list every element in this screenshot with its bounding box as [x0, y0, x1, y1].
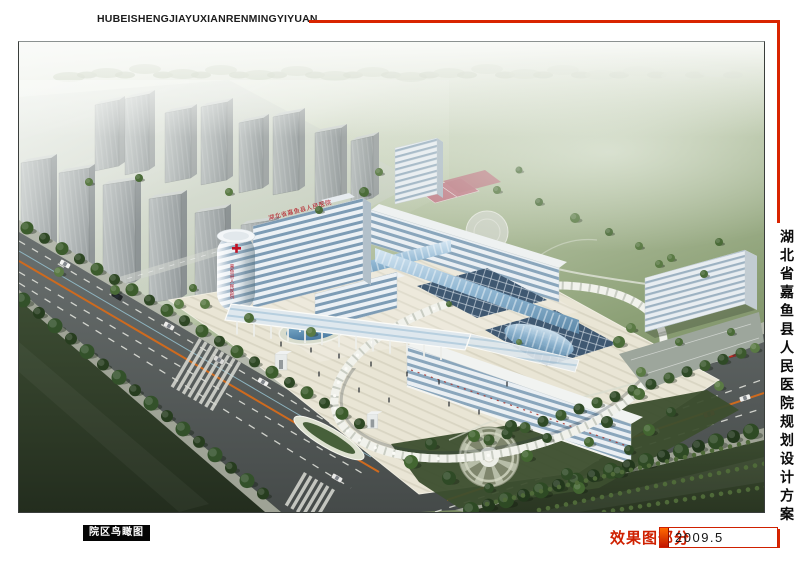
red-accent-hline	[309, 20, 779, 23]
rendering-frame: 湖北省嘉鱼县人民医院 嘉鱼县人民医院	[18, 41, 765, 513]
presentation-sheet: HUBEISHENGJIAYUXIANRENMINGYIYUAN 湖北省嘉鱼县人…	[0, 0, 800, 565]
date-box-accent-bar	[660, 528, 669, 547]
tower-side-sign: 嘉鱼县人民医院	[229, 263, 235, 300]
aerial-rendering: 湖北省嘉鱼县人民医院 嘉鱼县人民医院	[19, 42, 764, 512]
view-label: 院区鸟瞰图	[83, 525, 150, 541]
date-text: 2009.5	[675, 528, 724, 547]
red-cross-icon	[235, 244, 238, 253]
tower-cylinder: 嘉鱼县人民医院	[217, 229, 255, 312]
red-accent-vline-top	[777, 20, 780, 223]
pinyin-title: HUBEISHENGJIAYUXIANRENMINGYIYUAN	[97, 13, 318, 25]
vertical-title: 湖北省嘉鱼县人民医院规划设计方案	[775, 229, 799, 525]
date-box: 2009.5	[659, 527, 778, 548]
